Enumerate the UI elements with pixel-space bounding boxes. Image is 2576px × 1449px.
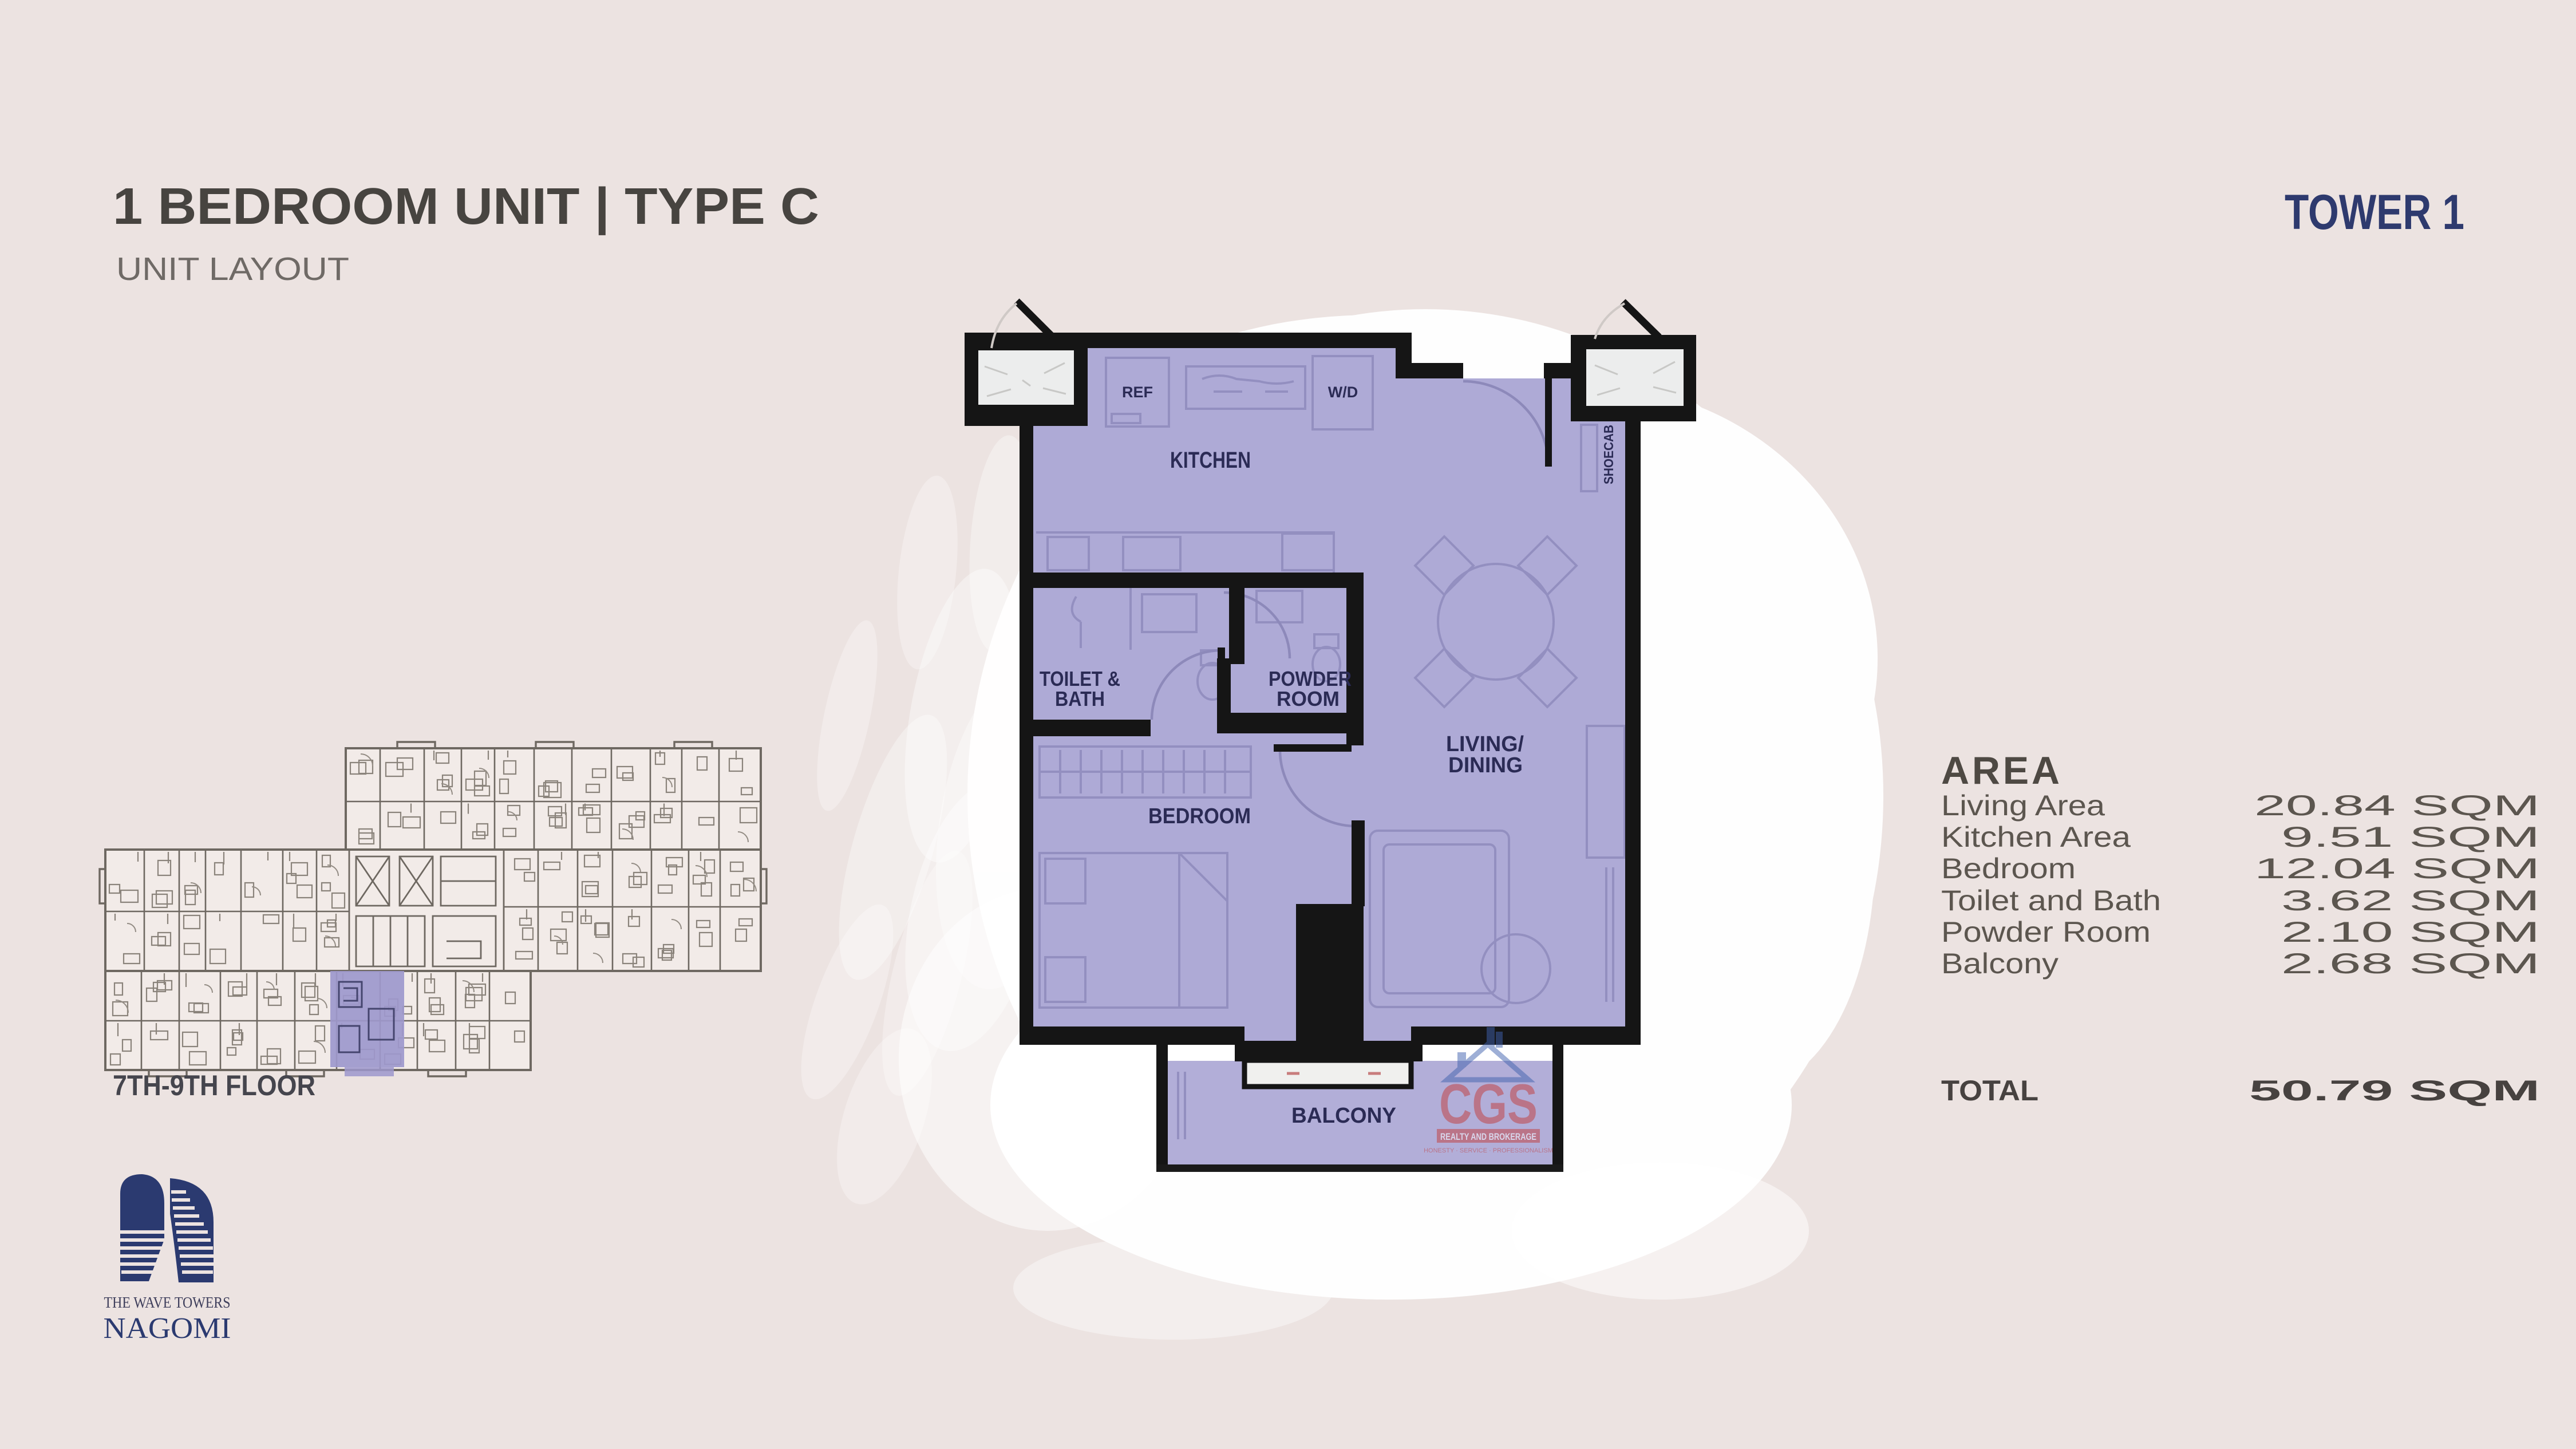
svg-text:Bedroom: Bedroom xyxy=(1941,852,2076,885)
svg-text:NAGOMI: NAGOMI xyxy=(104,1312,231,1345)
svg-text:THE WAVE TOWERS: THE WAVE TOWERS xyxy=(104,1294,231,1311)
svg-text:BATH: BATH xyxy=(1055,687,1105,710)
svg-text:2.10 SQM: 2.10 SQM xyxy=(2281,916,2540,948)
svg-text:1 BEDROOM UNIT | TYPE C: 1 BEDROOM UNIT | TYPE C xyxy=(113,178,819,236)
svg-text:20.84 SQM: 20.84 SQM xyxy=(2254,789,2540,822)
svg-text:REF: REF xyxy=(1122,384,1153,401)
svg-text:Kitchen Area: Kitchen Area xyxy=(1941,821,2131,853)
svg-text:Balcony: Balcony xyxy=(1941,947,2059,980)
svg-text:BALCONY: BALCONY xyxy=(1291,1104,1396,1128)
svg-text:UNIT LAYOUT: UNIT LAYOUT xyxy=(116,251,349,287)
svg-text:HONESTY · SERVICE · PROFESSION: HONESTY · SERVICE · PROFESSIONALISM xyxy=(1424,1147,1553,1154)
svg-text:50.79 SQM: 50.79 SQM xyxy=(2249,1075,2540,1107)
svg-text:Living Area: Living Area xyxy=(1941,789,2105,822)
svg-text:DINING: DINING xyxy=(1448,753,1523,777)
svg-text:W/D: W/D xyxy=(1328,384,1358,401)
svg-text:Powder Room: Powder Room xyxy=(1941,916,2151,948)
svg-text:KITCHEN: KITCHEN xyxy=(1170,448,1251,473)
svg-text:9.51 SQM: 9.51 SQM xyxy=(2281,821,2540,853)
svg-text:CGS: CGS xyxy=(1439,1072,1538,1135)
svg-text:7TH-9TH FLOOR: 7TH-9TH FLOOR xyxy=(113,1069,315,1101)
svg-text:TOWER 1: TOWER 1 xyxy=(2285,185,2464,240)
svg-text:SHOECAB: SHOECAB xyxy=(1601,425,1616,484)
svg-text:BEDROOM: BEDROOM xyxy=(1148,804,1251,828)
svg-text:REALTY AND BROKERAGE: REALTY AND BROKERAGE xyxy=(1440,1131,1536,1142)
svg-text:3.62 SQM: 3.62 SQM xyxy=(2281,885,2540,917)
svg-text:ROOM: ROOM xyxy=(1277,687,1340,710)
svg-text:2.68 SQM: 2.68 SQM xyxy=(2281,947,2540,980)
svg-text:TOTAL: TOTAL xyxy=(1941,1075,2038,1107)
svg-text:LIVING/: LIVING/ xyxy=(1446,732,1524,756)
svg-text:Toilet and Bath: Toilet and Bath xyxy=(1941,885,2161,917)
svg-text:12.04 SQM: 12.04 SQM xyxy=(2254,852,2540,885)
